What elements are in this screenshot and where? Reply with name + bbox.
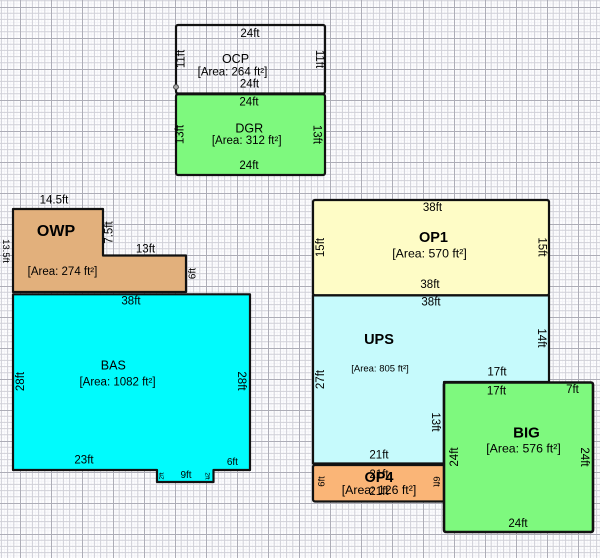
svg-text:13ft: 13ft <box>429 412 441 432</box>
svg-text:15ft: 15ft <box>315 237 327 257</box>
svg-text:DGR: DGR <box>235 121 263 135</box>
svg-text:27ft: 27ft <box>315 369 327 389</box>
svg-text:17ft: 17ft <box>487 367 507 379</box>
svg-text:13ft: 13ft <box>311 125 323 145</box>
svg-text:BIG: BIG <box>513 425 540 442</box>
svg-text:21ft: 21ft <box>369 486 389 498</box>
svg-text:6ft: 6ft <box>431 476 442 487</box>
svg-text:[Area: 312 ft²]: [Area: 312 ft²] <box>212 135 282 147</box>
svg-text:14ft: 14ft <box>535 328 547 348</box>
svg-text:[Area: 576 ft²]: [Area: 576 ft²] <box>486 442 561 456</box>
svg-text:[Area: 1082 ft²]: [Area: 1082 ft²] <box>79 377 155 389</box>
svg-text:24ft: 24ft <box>578 447 590 467</box>
svg-text:[Area: 264 ft²]: [Area: 264 ft²] <box>198 67 268 79</box>
svg-text:6ft: 6ft <box>227 457 238 468</box>
svg-text:11ft: 11ft <box>176 49 188 68</box>
svg-text:23ft: 23ft <box>74 455 94 467</box>
svg-text:38ft: 38ft <box>421 297 441 309</box>
svg-text:38ft: 38ft <box>420 279 440 291</box>
svg-text:[Area: 570 ft²]: [Area: 570 ft²] <box>392 247 467 261</box>
svg-text:24ft: 24ft <box>240 28 260 40</box>
svg-text:9ft: 9ft <box>180 470 191 481</box>
svg-text:38ft: 38ft <box>121 296 141 308</box>
svg-text:OP1: OP1 <box>419 230 448 246</box>
svg-text:13.5ft: 13.5ft <box>0 239 11 263</box>
svg-text:28ft: 28ft <box>235 371 247 391</box>
svg-text:13ft: 13ft <box>136 244 156 256</box>
svg-text:OWP: OWP <box>37 223 76 240</box>
svg-text:17ft: 17ft <box>487 386 507 398</box>
svg-text:13ft: 13ft <box>175 124 187 144</box>
svg-text:28ft: 28ft <box>15 371 27 391</box>
svg-text:UPS: UPS <box>364 332 394 348</box>
svg-text:2ft: 2ft <box>204 472 211 479</box>
svg-text:38ft: 38ft <box>423 202 443 214</box>
svg-text:11ft: 11ft <box>313 50 325 69</box>
svg-text:[Area: 805 ft²]: [Area: 805 ft²] <box>351 364 409 375</box>
svg-text:24ft: 24ft <box>239 160 259 172</box>
svg-text:24ft: 24ft <box>239 97 259 109</box>
svg-text:24ft: 24ft <box>240 79 260 91</box>
svg-text:7ft: 7ft <box>566 384 580 396</box>
svg-text:BAS: BAS <box>101 359 126 373</box>
svg-text:24ft: 24ft <box>449 447 461 467</box>
svg-text:14.5ft: 14.5ft <box>40 195 70 207</box>
svg-text:2ft: 2ft <box>159 472 166 479</box>
svg-text:6ft: 6ft <box>188 268 199 279</box>
svg-text:24ft: 24ft <box>508 518 528 530</box>
svg-text:OCP: OCP <box>222 52 249 66</box>
svg-text:21ft: 21ft <box>369 450 389 462</box>
svg-text:7.5ft: 7.5ft <box>104 221 116 244</box>
svg-text:6ft: 6ft <box>317 476 328 487</box>
svg-text:[Area: 274 ft²]: [Area: 274 ft²] <box>28 266 98 278</box>
svg-text:15ft: 15ft <box>536 237 548 257</box>
